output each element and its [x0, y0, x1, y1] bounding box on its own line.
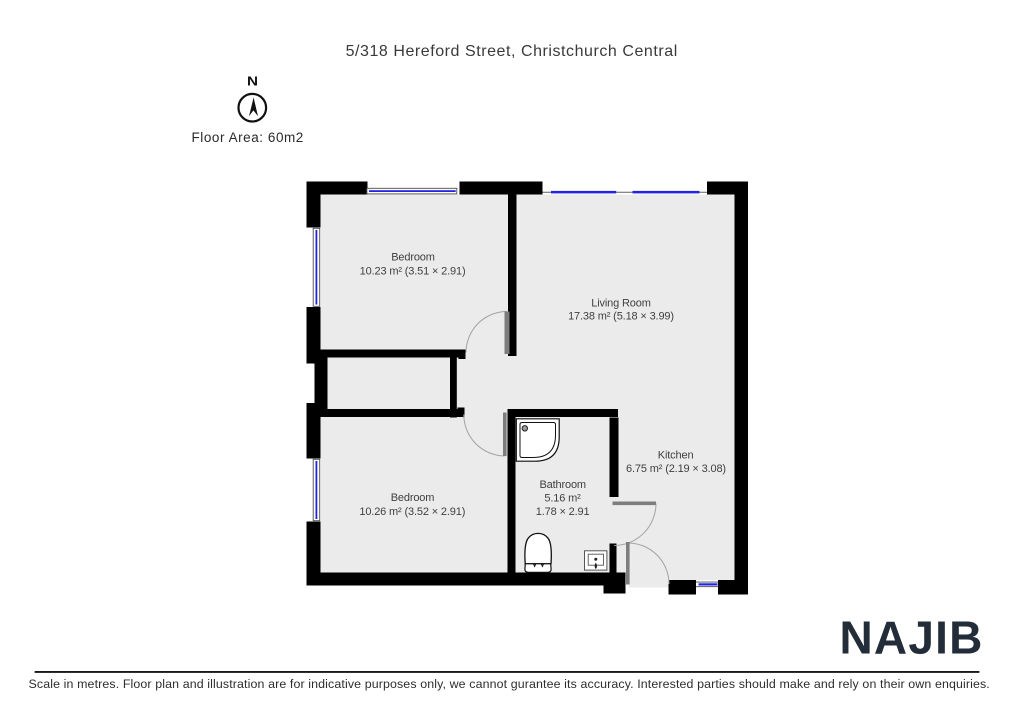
- svg-text:N: N: [247, 74, 258, 88]
- svg-text:10.26 m² (3.52 × 2.91): 10.26 m² (3.52 × 2.91): [359, 506, 465, 518]
- svg-text:6.75 m² (2.19 × 3.08): 6.75 m² (2.19 × 3.08): [626, 463, 726, 475]
- svg-text:Bedroom: Bedroom: [391, 492, 435, 504]
- svg-text:Floor Area: 60m2: Floor Area: 60m2: [192, 130, 304, 145]
- svg-text:Bedroom: Bedroom: [391, 251, 435, 263]
- svg-text:Scale in metres. Floor plan an: Scale in metres. Floor plan and illustra…: [29, 677, 990, 691]
- svg-text:Bathroom: Bathroom: [539, 479, 586, 491]
- svg-text:10.23 m² (3.51 × 2.91): 10.23 m² (3.51 × 2.91): [360, 265, 466, 277]
- svg-text:NAJIB: NAJIB: [840, 612, 984, 664]
- svg-text:Living Room: Living Room: [591, 297, 651, 309]
- svg-text:Kitchen: Kitchen: [658, 450, 694, 462]
- svg-text:5/318 Hereford Street, Christc: 5/318 Hereford Street, Christchurch Cent…: [346, 43, 678, 60]
- svg-text:1.78 × 2.91: 1.78 × 2.91: [536, 506, 590, 518]
- svg-text:5.16 m²: 5.16 m²: [544, 493, 581, 505]
- svg-text:17.38 m² (5.18 × 3.99): 17.38 m² (5.18 × 3.99): [568, 311, 674, 323]
